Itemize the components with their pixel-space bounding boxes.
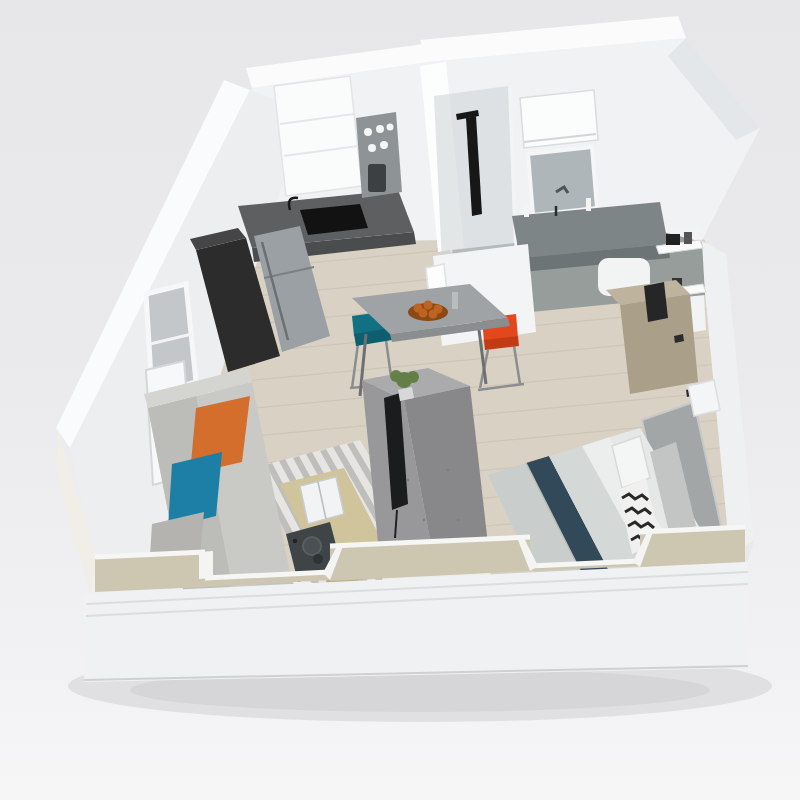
- shelf-item-small: [684, 232, 692, 244]
- oven-tower: [274, 76, 362, 196]
- shelf-item-dark: [666, 234, 680, 245]
- apartment-render: [0, 0, 800, 800]
- medicine-cabinet: [520, 90, 598, 148]
- floorplan-svg: [0, 0, 800, 800]
- dresser-mirror: [644, 282, 668, 322]
- bottle: [452, 292, 458, 309]
- soap-bottle: [524, 204, 529, 217]
- nightstand: [688, 380, 720, 416]
- soap-bottle-2: [586, 198, 591, 211]
